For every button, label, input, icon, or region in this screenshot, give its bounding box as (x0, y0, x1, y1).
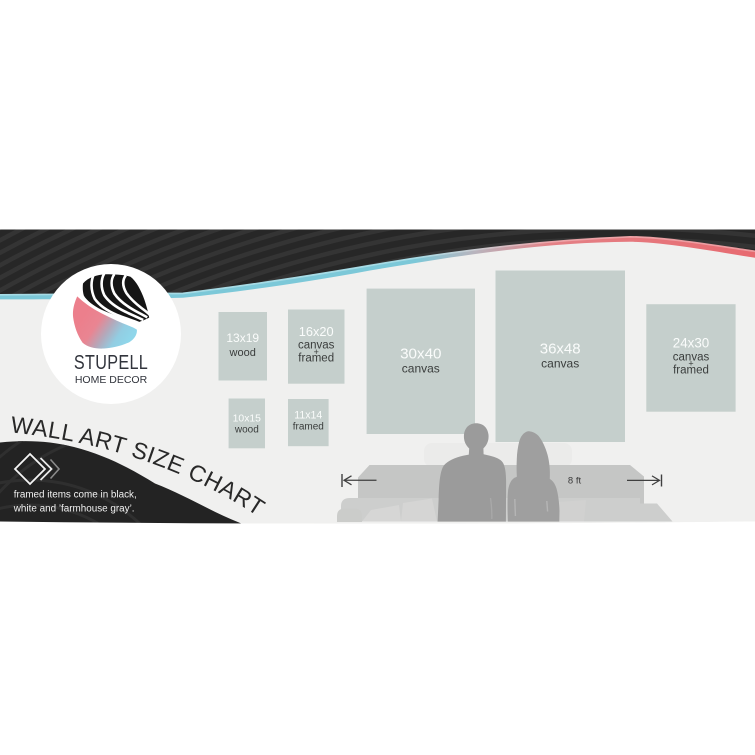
svg-text:30x40: 30x40 (400, 346, 441, 363)
svg-text:11x14: 11x14 (294, 410, 322, 422)
svg-text:10x15: 10x15 (233, 414, 262, 425)
svg-text:13x19: 13x19 (226, 331, 259, 345)
svg-text:8 ft: 8 ft (568, 475, 582, 486)
svg-text:wood: wood (234, 425, 259, 436)
svg-text:STUPELL: STUPELL (74, 350, 148, 373)
svg-text:framed: framed (298, 353, 334, 365)
svg-text:wood: wood (229, 347, 256, 359)
svg-text:HOME DECOR: HOME DECOR (75, 374, 148, 386)
svg-text:framed items come in black,: framed items come in black, (14, 490, 137, 501)
svg-text:canvas: canvas (541, 357, 579, 371)
svg-text:framed: framed (293, 422, 324, 433)
svg-text:16x20: 16x20 (299, 324, 334, 339)
svg-text:24x30: 24x30 (673, 336, 709, 351)
svg-text:white and ’farmhouse gray’.: white and ’farmhouse gray’. (13, 504, 135, 515)
svg-text:canvas: canvas (402, 362, 440, 376)
svg-text:framed: framed (673, 365, 709, 377)
svg-text:36x48: 36x48 (540, 341, 581, 358)
